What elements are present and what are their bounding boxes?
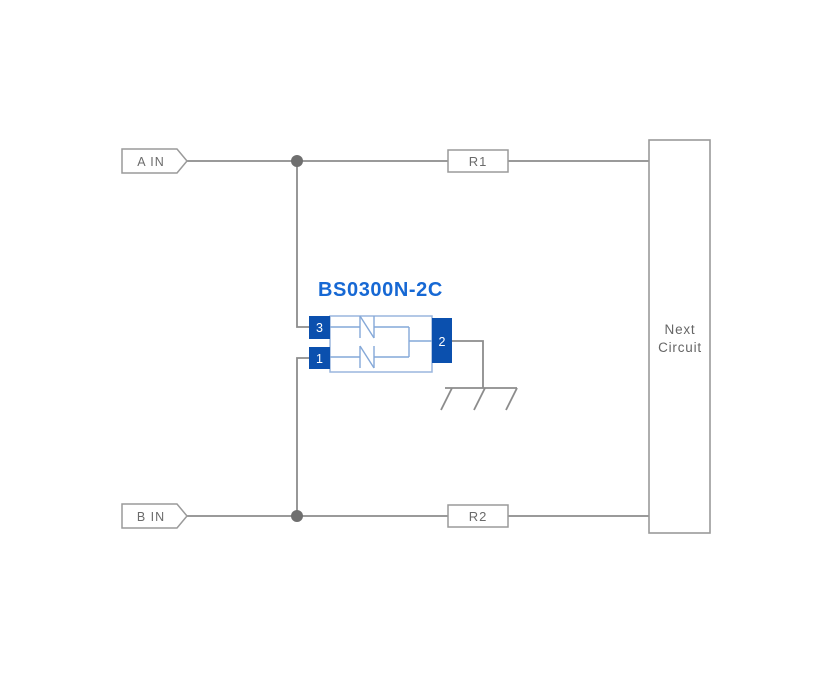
tvs-component: BS0300N-2C bbox=[309, 279, 452, 372]
resistor-r1: R1 bbox=[448, 150, 508, 172]
wire-pin2-to-ground bbox=[452, 341, 483, 388]
input-a: A IN bbox=[122, 149, 187, 173]
pin-2-number: 2 bbox=[439, 335, 446, 349]
next-circuit-label-line2: Circuit bbox=[658, 340, 702, 355]
next-circuit-label-line1: Next bbox=[665, 322, 696, 337]
pin-1-number: 1 bbox=[316, 352, 323, 366]
pin-3: 3 bbox=[309, 316, 330, 339]
ground-hatch-right bbox=[506, 388, 517, 410]
pin-2: 2 bbox=[432, 318, 452, 363]
wire-junction-a-to-pin3 bbox=[297, 161, 309, 327]
schematic-canvas: A IN B IN R1 R2 Next Circuit BS0300N-2C bbox=[0, 0, 832, 675]
junction-dot-b bbox=[291, 510, 303, 522]
ground-symbol bbox=[441, 388, 517, 410]
next-circuit-block: Next Circuit bbox=[649, 140, 710, 533]
pin-3-number: 3 bbox=[316, 321, 323, 335]
junction-dot-a bbox=[291, 155, 303, 167]
ground-hatch-middle bbox=[474, 388, 485, 410]
r2-label: R2 bbox=[469, 509, 488, 524]
r1-label: R1 bbox=[469, 154, 488, 169]
ground-hatch-left bbox=[441, 388, 452, 410]
component-title: BS0300N-2C bbox=[318, 279, 443, 301]
circuit-diagram: A IN B IN R1 R2 Next Circuit BS0300N-2C bbox=[0, 0, 832, 675]
a-in-label: A IN bbox=[137, 155, 165, 169]
pin-1: 1 bbox=[309, 347, 330, 369]
component-body bbox=[330, 316, 432, 372]
wire-junction-b-to-pin1 bbox=[297, 358, 309, 516]
resistor-r2: R2 bbox=[448, 505, 508, 527]
b-in-label: B IN bbox=[137, 510, 165, 524]
input-b: B IN bbox=[122, 504, 187, 528]
